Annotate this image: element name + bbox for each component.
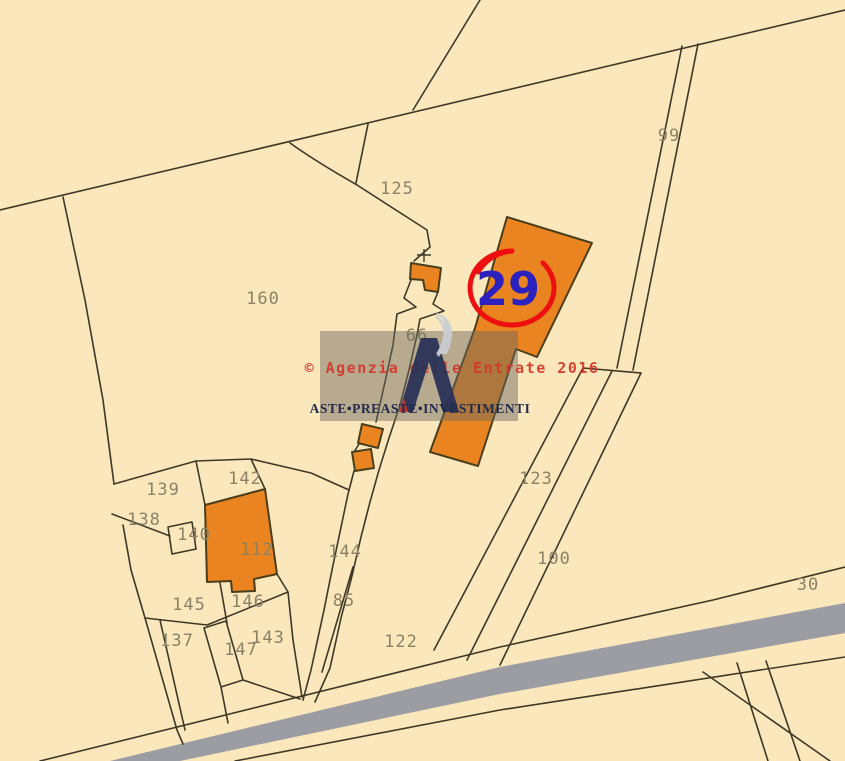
watermark-copyright-text: © Agenzia delle Entrate 2016 bbox=[305, 359, 600, 377]
parcel-label-112: 112 bbox=[240, 540, 274, 560]
parcel-label-144: 144 bbox=[328, 542, 362, 562]
parcel-label-145: 145 bbox=[172, 595, 206, 615]
parcel-label-138: 138 bbox=[127, 510, 161, 530]
parcel-label-146: 146 bbox=[231, 592, 265, 612]
parcel-label-85: 85 bbox=[333, 591, 355, 611]
highlight-number: 29 bbox=[476, 262, 540, 316]
parcel-label-122: 122 bbox=[384, 632, 418, 652]
parcel-label-99: 99 bbox=[658, 126, 680, 146]
parcel-label-147: 147 bbox=[224, 640, 258, 660]
watermark-brand-text: ASTE•PREASTE•INVESTIMENTI bbox=[310, 401, 531, 416]
parcel-label-30: 30 bbox=[797, 575, 819, 595]
map-canvas: 125 99 160 66 123 100 30 139 138 142 140… bbox=[0, 0, 845, 761]
building-tiny-2 bbox=[352, 449, 374, 471]
building-tiny-1 bbox=[358, 424, 383, 448]
parcel-label-142: 142 bbox=[228, 469, 262, 489]
parcel-label-140: 140 bbox=[177, 525, 211, 545]
parcel-label-100: 100 bbox=[537, 549, 571, 569]
parcel-label-123: 123 bbox=[519, 469, 553, 489]
parcel-label-139: 139 bbox=[146, 480, 180, 500]
parcel-label-125: 125 bbox=[380, 179, 414, 199]
parcel-label-137: 137 bbox=[160, 631, 194, 651]
parcel-label-160: 160 bbox=[246, 289, 280, 309]
cadastral-map: 125 99 160 66 123 100 30 139 138 142 140… bbox=[0, 0, 845, 761]
